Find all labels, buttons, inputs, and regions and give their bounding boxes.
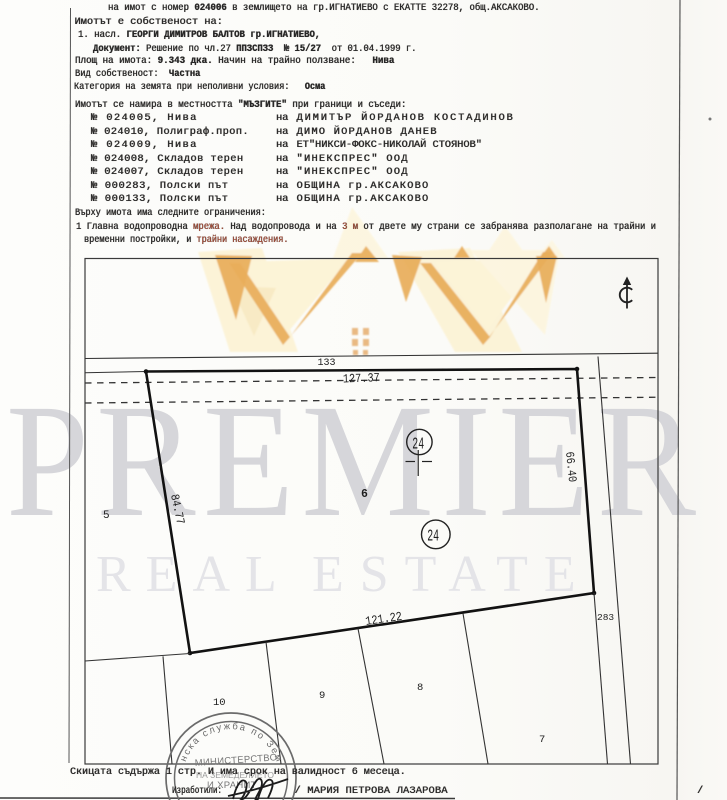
svg-text:7: 7 — [539, 734, 545, 746]
svg-text:PREMIER: PREMIER — [6, 370, 703, 550]
svg-text:24: 24 — [412, 435, 424, 455]
svg-text:133: 133 — [318, 358, 336, 369]
svg-text:10: 10 — [213, 697, 226, 709]
svg-text:9: 9 — [319, 690, 325, 702]
svg-text:6: 6 — [361, 488, 368, 501]
svg-text:ESTATE: ESTATE — [312, 546, 592, 603]
svg-text:127.37: 127.37 — [343, 371, 380, 386]
svg-text:8: 8 — [417, 682, 423, 694]
svg-text:121.22: 121.22 — [365, 610, 404, 629]
svg-text:283: 283 — [597, 612, 614, 623]
svg-text:5: 5 — [103, 510, 110, 522]
svg-text:24: 24 — [427, 527, 439, 547]
svg-text:REAL: REAL — [96, 546, 292, 603]
